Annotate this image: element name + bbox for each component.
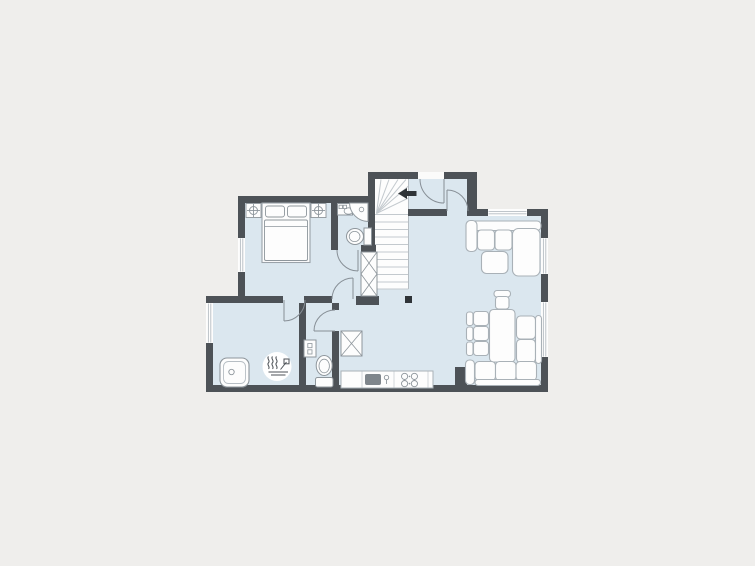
stove-burner <box>411 373 417 379</box>
bathroom-toilet-tank <box>364 228 372 245</box>
wall-closet-stub-bottom <box>356 296 379 305</box>
window-bedroom <box>238 238 245 272</box>
stove-knob <box>409 383 411 385</box>
wall-stair-top-left <box>368 172 418 179</box>
sofa-chaise <box>513 229 541 277</box>
dining-chair-back <box>467 342 474 356</box>
dining-chair-seat <box>474 327 489 341</box>
column <box>405 296 412 303</box>
wall-entry-right <box>467 172 477 216</box>
wall-wc-right-stub <box>332 303 339 310</box>
pillow <box>266 206 285 217</box>
hot-tub-jet <box>229 369 234 374</box>
wall-bedroom-left-lower <box>238 272 245 303</box>
window-living-top <box>488 209 527 216</box>
closet <box>361 252 377 296</box>
floor-plan-page <box>0 0 755 566</box>
dining-table <box>490 310 516 363</box>
bench-arm <box>466 360 475 385</box>
bench-back-right <box>536 316 542 364</box>
bench-seat <box>517 340 536 363</box>
bench-back-bottom <box>475 380 541 386</box>
wall-right-upper <box>541 216 548 238</box>
sofa-cushion <box>495 230 512 250</box>
bench-seat <box>517 316 536 339</box>
wall-right-mid <box>541 274 548 302</box>
window-living-right-upper <box>541 238 548 274</box>
dining-chair-seat <box>474 342 489 356</box>
dining-chair-seat <box>474 312 489 326</box>
kitchen-faucet <box>384 375 388 379</box>
wall-closet-stub-top <box>361 245 376 252</box>
wall-living-top-corner <box>527 209 548 216</box>
wall-living-top <box>477 209 488 216</box>
entrance-opening <box>418 172 444 179</box>
wall-bedroom-top <box>238 196 371 203</box>
stove-knob <box>409 376 411 378</box>
bench-seat <box>496 362 517 381</box>
wall-wc-right <box>332 331 339 385</box>
wall-wc-top <box>304 296 332 303</box>
sofa-arm <box>466 221 477 252</box>
dining-chair-back <box>467 327 474 341</box>
bench-seat <box>516 362 537 381</box>
wall-bedroom-left-upper <box>238 196 245 238</box>
blanket <box>265 220 308 261</box>
pillow <box>288 206 307 217</box>
wall-entry-living <box>408 209 447 216</box>
ottoman <box>482 252 509 274</box>
wc-sink <box>304 340 316 357</box>
wall-bedroom-bathroom <box>331 196 338 250</box>
bench-seat <box>475 362 496 381</box>
floor-plan-svg <box>0 0 755 566</box>
sofa-cushion <box>478 230 495 250</box>
wall-left-lower <box>206 343 213 392</box>
window-sauna <box>206 303 213 343</box>
dining-chair-seat <box>496 297 510 310</box>
stove-burner <box>402 373 408 379</box>
stove-burner <box>411 381 417 387</box>
kitchen-sink-basin <box>365 374 381 385</box>
stove-burner <box>402 381 408 387</box>
wc-toilet-base <box>316 378 334 388</box>
dining-chair-back <box>467 312 474 326</box>
